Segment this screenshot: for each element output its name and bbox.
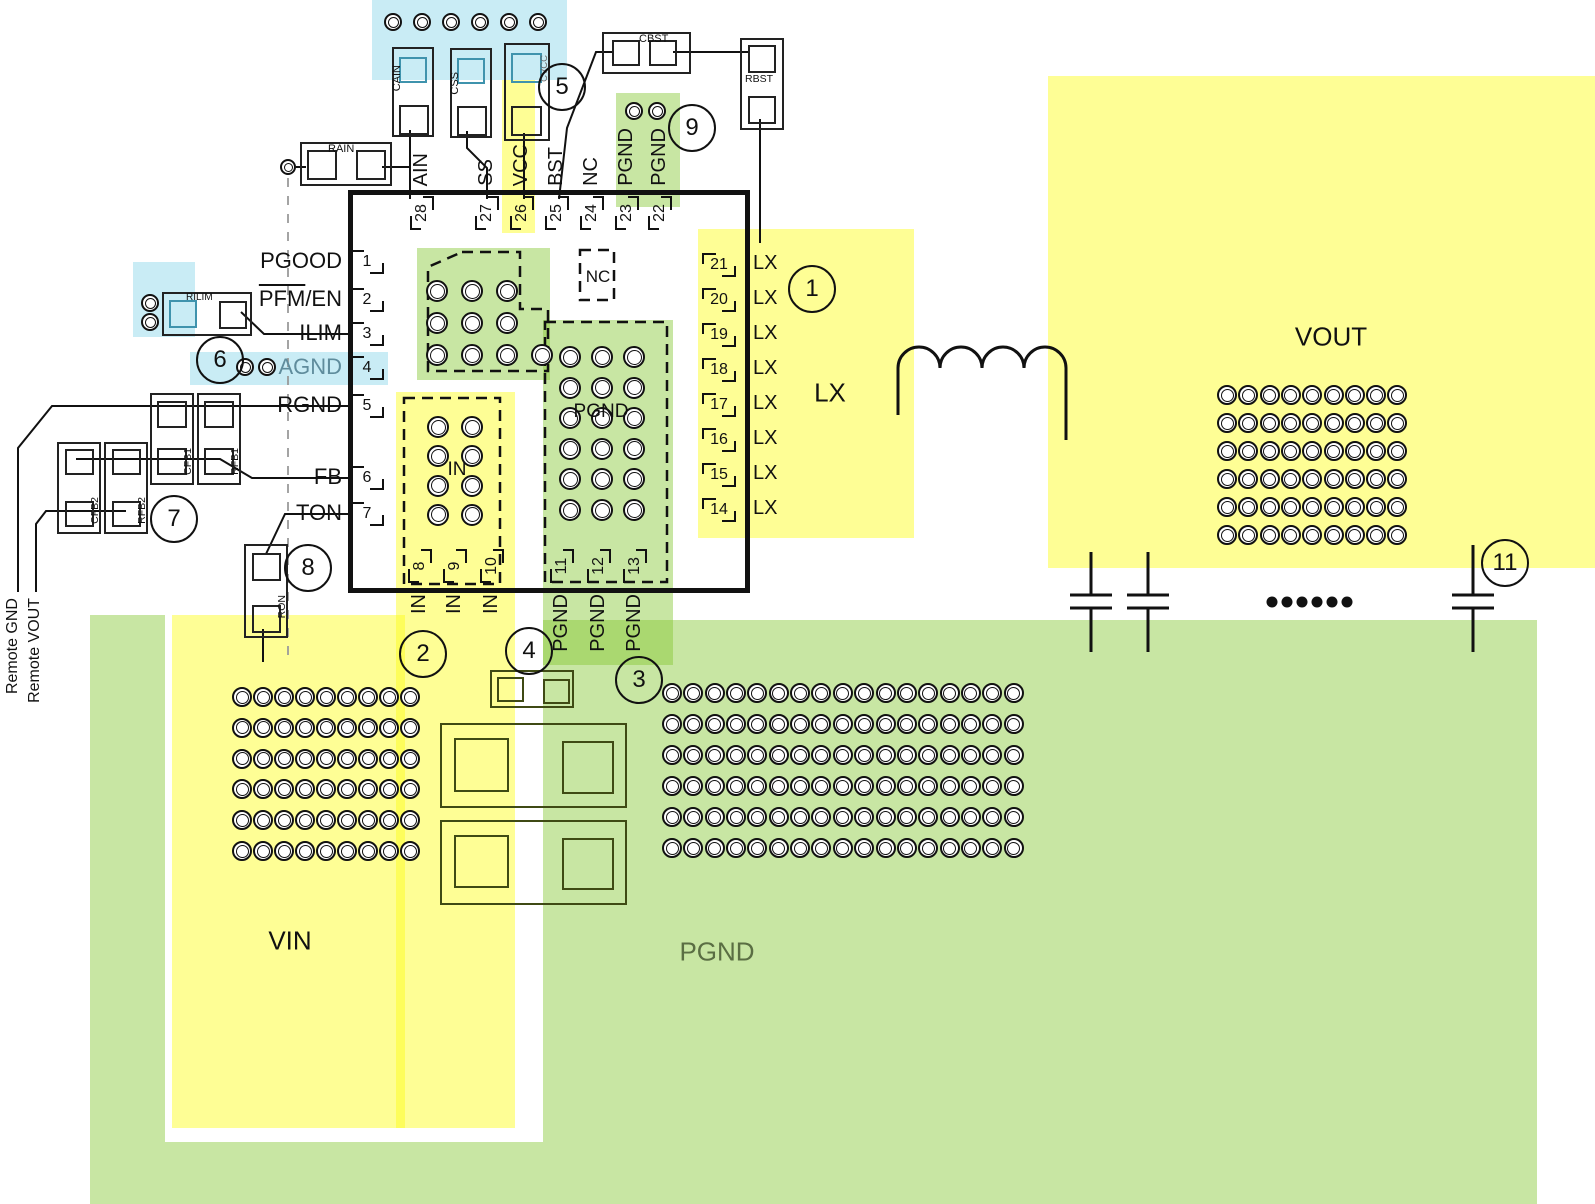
via-array-in [427,504,449,526]
via-array-pgnd [897,745,917,765]
pin-16: 16 [702,428,736,452]
pad [562,838,614,890]
via-array-pgnd [854,776,874,796]
pin-21: 21 [702,253,736,277]
via-array-pgnd [705,776,725,796]
via-array-pgnd [769,838,789,858]
via-array-vin [316,687,336,707]
callout-7: 7 [150,495,198,543]
via-array-vout [1260,525,1280,545]
via-array-topleft [426,312,448,334]
pgnd-strip-left [90,615,165,1142]
via-array-pgnd [1004,838,1024,858]
via-array-pgnd-inner [623,346,645,368]
pad [748,96,776,124]
via-array-pgnd [705,745,725,765]
via-array-pgnd-inner [559,377,581,399]
via-array-topleft [461,280,483,302]
pad [252,553,281,581]
via-array-pgnd [833,838,853,858]
callout-1: 1 [788,265,836,313]
ellipsis-dots [1267,597,1353,608]
pin-28: 28 [410,196,434,230]
via-array-vout [1281,469,1301,489]
pin-label-lx: LX [753,252,777,275]
pgnd-inner-label: PGND [574,401,629,423]
lx-region-label: LX [814,378,846,409]
via-row-top-bypass [413,13,431,31]
pin-20: 20 [702,288,736,312]
via-array-pgnd [940,745,960,765]
pin-label-lx: LX [753,462,777,485]
via-array-in [461,416,483,438]
via-array-vin [358,841,378,861]
pgnd-region-label: PGND [679,937,754,968]
via-row-top-bypass [500,13,518,31]
pin-label-in: IN [408,594,431,614]
via-array-vin [232,687,252,707]
via-array-vout [1345,497,1365,517]
via-array-pgnd [769,714,789,734]
pin-label-lx: LX [753,427,777,450]
via-array-pgnd [790,807,810,827]
via-array-pgnd [790,714,810,734]
via-array-vin [316,749,336,769]
via-array-vin [337,718,357,738]
via-row-top-bypass [384,13,402,31]
via-array-pgnd [769,807,789,827]
via-array-pgnd [726,838,746,858]
via-array-vout [1260,385,1280,405]
via-array-vout [1345,525,1365,545]
pad [399,105,429,135]
via-array-vout [1345,385,1365,405]
component-cfb2: CFB2 [57,442,101,534]
via-array-pgnd-inner [591,438,613,460]
via-array-pgnd [940,807,960,827]
via-array-vin [379,687,399,707]
via-array-vin [232,718,252,738]
via-array-pgnd [726,714,746,734]
via-array-vin [337,841,357,861]
pin-label-ton: TON [112,500,342,526]
pin-label-lx: LX [753,357,777,380]
via-array-pgnd [1004,714,1024,734]
pin-10: 10 [480,549,504,583]
pin-label-pgnd: PGND [648,128,671,186]
nc-inner-label: NC [586,267,611,287]
pin-11: 11 [550,549,574,583]
via-array-pgnd [961,683,981,703]
via-array-pgnd [833,714,853,734]
via-array-topleft [461,312,483,334]
via-array-pgnd [940,838,960,858]
callout-11: 11 [1481,539,1529,587]
via-array-vout [1281,497,1301,517]
pin-label-lx: LX [753,497,777,520]
via-array-pgnd-inner [591,499,613,521]
via-array-vout [1281,413,1301,433]
via-array-vout [1217,525,1237,545]
callout-6: 6 [196,336,244,384]
pad [454,835,509,888]
via-array-topleft [496,312,518,334]
via-array-pgnd-inner [559,438,581,460]
pin-15: 15 [702,463,736,487]
via-array-vin [316,718,336,738]
via-array-pgnd [940,683,960,703]
via-rain-terminal [280,159,296,175]
pin-label-ss: SS [475,159,498,186]
component-label: CAIN [391,65,403,91]
via-row-top-bypass [471,13,489,31]
via-array-pgnd [876,838,896,858]
component-rain: RAIN [300,142,392,186]
via-array-pgnd [854,807,874,827]
via-array-pgnd [897,838,917,858]
pin-6: 6 [350,466,384,490]
pin-3: 3 [350,322,384,346]
via-row-top-bypass [442,13,460,31]
pin-27: 27 [475,196,499,230]
via-array-pgnd [897,683,917,703]
via-array-pgnd-inner [591,346,613,368]
pad [457,106,487,136]
via-array-topleft [461,344,483,366]
via-array-pgnd-inner [623,438,645,460]
pin-label-pgnd: PGND [550,594,573,652]
pin-label-rgnd: RGND [112,392,342,418]
via-array-pgnd [1004,776,1024,796]
via-array-pgnd [705,714,725,734]
pgnd-band-bottom [90,1142,543,1204]
via-array-pgnd-inner [623,499,645,521]
callout-3: 3 [615,656,663,704]
ic-outline [348,190,750,593]
via-array-vin [379,718,399,738]
via-array-pgnd [961,745,981,765]
via-array-pgnd [961,838,981,858]
via-array-vout [1260,469,1280,489]
pin-9: 9 [443,549,467,583]
component-cbst: CBST [602,32,691,74]
via-array-pgnd [833,807,853,827]
via-array-vin [232,841,252,861]
pin-2: 2 [350,288,384,312]
via-array-pgnd [662,838,682,858]
pad [612,40,640,66]
inductor-symbol [898,347,1066,440]
vout-region-label: VOUT [1295,322,1367,353]
via-array-vout [1324,385,1344,405]
via-array-vin [358,687,378,707]
component-ron: RON [244,544,288,638]
pin-5: 5 [350,394,384,418]
via-array-vout [1281,441,1301,461]
via-array-pgnd [662,745,682,765]
via-array-vin [253,718,273,738]
via-array-vout [1366,525,1386,545]
via-array-pgnd [662,714,682,734]
via-array-topleft [531,344,553,366]
via-array-pgnd [705,807,725,827]
pin-label-pgood: PGOOD [112,248,342,274]
via-array-pgnd [790,838,810,858]
via-array-vout [1217,441,1237,461]
via-array-pgnd [961,776,981,796]
via-array-vout [1281,525,1301,545]
via-array-vin [274,841,294,861]
via-array-vout [1366,413,1386,433]
pad [399,57,427,83]
via-array-topleft [426,344,448,366]
via-array-vin [379,749,399,769]
pad [748,45,776,73]
pad [497,677,524,702]
via-array-vin [232,749,252,769]
pcb-layout-diagram: CAIN CSS CVCC RAIN CBST RBST RILIM CFB1 [0,0,1595,1204]
component-cain: CAIN [392,47,434,137]
via-array-vout [1345,413,1365,433]
via-array-vout [1366,469,1386,489]
via-array-vout [1324,469,1344,489]
via-array-pgnd [705,838,725,858]
via-array-vin [295,687,315,707]
via-array-vout [1217,469,1237,489]
callout-2: 2 [399,630,447,678]
via-array-pgnd [897,714,917,734]
component-input-bypass-cap [490,670,574,708]
pin-label-lx: LX [753,287,777,310]
via-array-pgnd [1004,745,1024,765]
via-array-pgnd [897,807,917,827]
via-array-vin [400,718,420,738]
pin-label-in: IN [443,594,466,614]
via-array-vout [1366,385,1386,405]
via-array-vin [274,749,294,769]
via-array-topleft [496,344,518,366]
via-array-pgnd [790,776,810,796]
pin-1: 1 [350,250,384,274]
via-array-in [427,416,449,438]
vin-region-label: VIN [268,926,311,957]
via-array-pgnd [662,776,682,796]
via-array-vin [400,749,420,769]
pin-22: 22 [648,196,672,230]
via-pair-pgnd2223 [625,102,643,120]
pin-12: 12 [587,549,611,583]
pin-7: 7 [350,502,384,526]
via-array-vin [295,841,315,861]
pin-label-bst: BST [545,147,568,186]
via-array-vout [1260,497,1280,517]
via-array-vout [1324,413,1344,433]
via-array-pgnd [897,776,917,796]
via-array-vout [1324,497,1344,517]
via-array-vout [1366,441,1386,461]
via-array-pgnd [769,745,789,765]
via-array-pgnd [961,807,981,827]
via-row-top-bypass [529,13,547,31]
via-array-vout [1324,441,1344,461]
pin-label-in: IN [480,594,503,614]
pin-24: 24 [580,196,604,230]
pin-label-lx: LX [753,392,777,415]
pin-label-vcc: VCC [510,144,533,186]
via-array-pgnd [705,683,725,703]
via-array-pgnd [940,776,960,796]
via-array-vin [400,841,420,861]
pad [457,58,485,84]
pin-26: 26 [510,196,534,230]
via-array-pgnd [790,683,810,703]
component-label: RON [276,595,288,618]
via-array-vin [316,841,336,861]
via-array-vout [1345,441,1365,461]
via-array-vout [1281,385,1301,405]
via-array-pgnd [769,776,789,796]
pin-label-nc: NC [580,157,603,186]
via-array-in [461,504,483,526]
via-array-pgnd [726,745,746,765]
via-array-pgnd-inner [591,377,613,399]
via-array-vout [1366,497,1386,517]
callout-8: 8 [284,544,332,592]
via-array-pgnd [726,807,746,827]
via-array-vout [1217,385,1237,405]
component-input-bulk-cap-2 [440,820,627,905]
pin-label-pgnd: PGND [587,594,610,652]
pin-label-pgnd: PGND [623,594,646,652]
via-array-topleft [426,280,448,302]
pad [511,106,542,136]
via-array-vout [1260,441,1280,461]
via-array-pgnd [876,683,896,703]
via-array-vin [295,749,315,769]
pad [543,679,570,704]
via-array-vin [358,718,378,738]
via-array-pgnd [833,745,853,765]
via-array-vin [295,718,315,738]
via-pair-pgnd2223 [648,102,666,120]
in-inner-label: IN [448,459,467,481]
via-array-vin [337,749,357,769]
via-array-pgnd [833,776,853,796]
via-array-pgnd [769,683,789,703]
via-array-vin [379,841,399,861]
via-array-pgnd [876,776,896,796]
via-array-pgnd [961,714,981,734]
pin-14: 14 [702,498,736,522]
pad [454,738,509,792]
via-array-pgnd-inner [623,377,645,399]
component-rbst: RBST [740,38,784,130]
pin-8: 8 [408,549,432,583]
component-input-bulk-cap-1 [440,723,627,808]
via-array-pgnd [940,714,960,734]
pad [511,53,542,83]
via-array-vin [253,841,273,861]
pin-label-pgnd: PGND [615,128,638,186]
pad [65,449,94,475]
pin-17: 17 [702,393,736,417]
pin-18: 18 [702,358,736,382]
via-array-vin [274,687,294,707]
via-array-pgnd [876,745,896,765]
pin-25: 25 [545,196,569,230]
via-array-pgnd [790,745,810,765]
component-label: RAIN [328,143,354,155]
via-array-vout [1345,469,1365,489]
via-array-vout [1217,497,1237,517]
via-array-pgnd [854,745,874,765]
via-array-vin [274,718,294,738]
remote-vout-label: Remote VOUT [26,598,44,703]
via-array-pgnd [876,714,896,734]
pad [356,150,386,180]
via-array-vout [1324,525,1344,545]
via-array-vout [1260,413,1280,433]
callout-9: 9 [668,104,716,152]
pin-23: 23 [615,196,639,230]
via-array-pgnd [854,714,874,734]
component-css: CSS [450,48,492,138]
via-array-pgnd-inner [559,346,581,368]
pin-19: 19 [702,323,736,347]
component-label: CFB2 [89,497,101,524]
via-array-pgnd [854,838,874,858]
callout-5: 5 [538,63,586,111]
pin-label-pfm/en: PFM/EN [112,286,342,312]
via-array-vin [358,749,378,769]
via-array-vin [337,687,357,707]
via-array-pgnd [726,683,746,703]
callout-4: 4 [505,627,553,675]
via-array-in [427,475,449,497]
component-label: CSS [449,72,461,95]
pin-label-fb: FB [112,464,342,490]
via-array-pgnd [854,683,874,703]
component-label: RBST [745,73,773,85]
via-array-pgnd-inner [559,499,581,521]
pin-label-lx: LX [753,322,777,345]
via-array-pgnd [1004,683,1024,703]
pgnd-plane-main [543,620,1537,1204]
pin-13: 13 [623,549,647,583]
via-array-pgnd [1004,807,1024,827]
component-label: CBST [639,33,668,45]
via-array-pgnd [876,807,896,827]
via-array-vin [253,749,273,769]
pin-label-ain: AIN [410,153,433,186]
remote-gnd-label: Remote GND [4,598,22,694]
via-array-vin [253,687,273,707]
via-array-vin [400,687,420,707]
via-array-pgnd [662,807,682,827]
via-array-vout [1217,413,1237,433]
via-array-pgnd [726,776,746,796]
via-array-topleft [496,280,518,302]
via-array-pgnd [833,683,853,703]
via-array-pgnd [662,683,682,703]
pad [562,741,614,794]
pin-4: 4 [350,356,384,380]
